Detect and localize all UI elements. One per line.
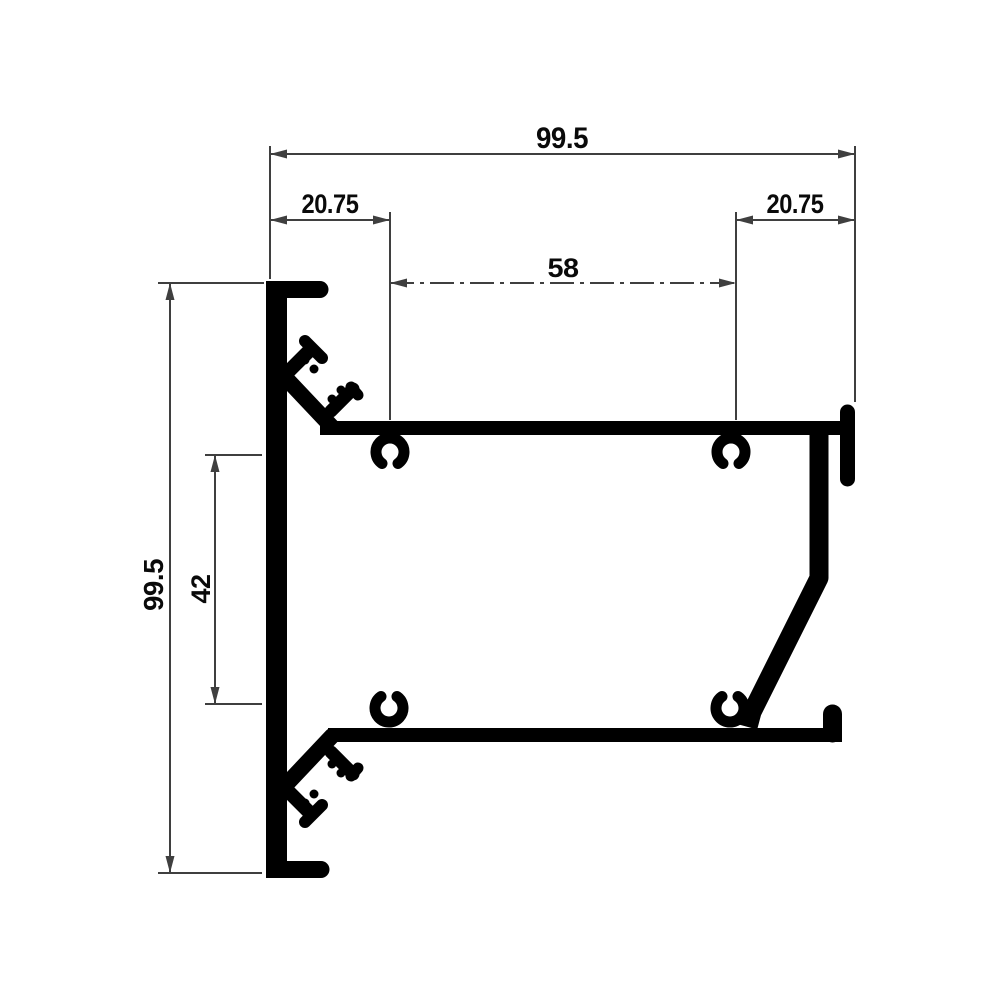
dim-label-side-inner-span: 42 [186, 575, 216, 604]
dim-label-top-left-offset: 20.75 [302, 189, 359, 219]
dim-label-top-center-span: 58 [548, 253, 580, 283]
arrow-icon [838, 216, 855, 225]
arrow-icon [736, 216, 753, 225]
arrow-icon [270, 216, 287, 225]
arrow-icon [390, 279, 407, 288]
profile-geometry [266, 281, 852, 878]
arrow-icon [166, 856, 175, 873]
arrow-icon [373, 216, 390, 225]
dim-label-top-right-offset: 20.75 [767, 189, 824, 219]
profile-top-rail [320, 421, 852, 435]
v-lower-hook-tooth [328, 395, 337, 404]
v-lower-hook-head [351, 387, 358, 395]
v-lower-hook-tooth [337, 386, 346, 395]
dimension-labels: 99.5 20.75 20.75 58 99.5 42 [138, 122, 824, 611]
profile-cross-section-drawing: 99.5 20.75 20.75 58 99.5 42 [0, 0, 1000, 1000]
arrow-icon [211, 687, 220, 704]
screw-boss-top-left [376, 438, 404, 463]
dimension-lines [158, 146, 855, 873]
dim-label-top-total-width: 99.5 [536, 122, 588, 155]
arrow-icon [270, 150, 287, 159]
technical-drawing-canvas: 99.5 20.75 20.75 58 99.5 42 [0, 0, 1000, 1000]
screw-boss-bottom-left [375, 697, 403, 722]
top-v-assembly [280, 341, 358, 427]
screw-boss-bottom-right [716, 697, 744, 722]
arrow-icon [719, 279, 736, 288]
dim-label-side-total-height: 99.5 [138, 559, 169, 611]
v-upper-hook-tooth [310, 365, 319, 374]
arrow-icon [211, 455, 220, 472]
bottom-v-assembly [280, 736, 358, 822]
v-upper-hook-tooth [301, 356, 310, 365]
arrow-icon [166, 283, 175, 300]
profile-right-wall-diagonal [748, 423, 819, 727]
arrow-icon [838, 150, 855, 159]
profile-bottom-rail [328, 728, 842, 742]
screw-boss-top-right [717, 438, 745, 463]
